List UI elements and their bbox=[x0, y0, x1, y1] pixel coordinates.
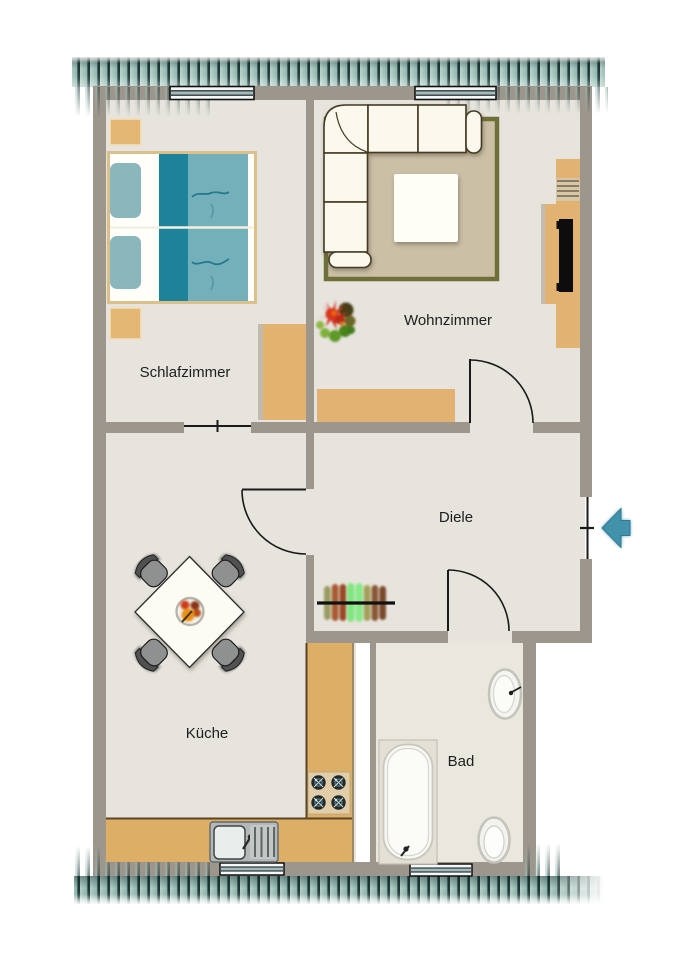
svg-text:Bad: Bad bbox=[448, 753, 475, 770]
svg-text:Schlafzimmer: Schlafzimmer bbox=[140, 364, 231, 381]
svg-text:Küche: Küche bbox=[186, 725, 229, 742]
svg-text:Diele: Diele bbox=[439, 509, 473, 526]
svg-text:Wohnzimmer: Wohnzimmer bbox=[404, 312, 492, 329]
